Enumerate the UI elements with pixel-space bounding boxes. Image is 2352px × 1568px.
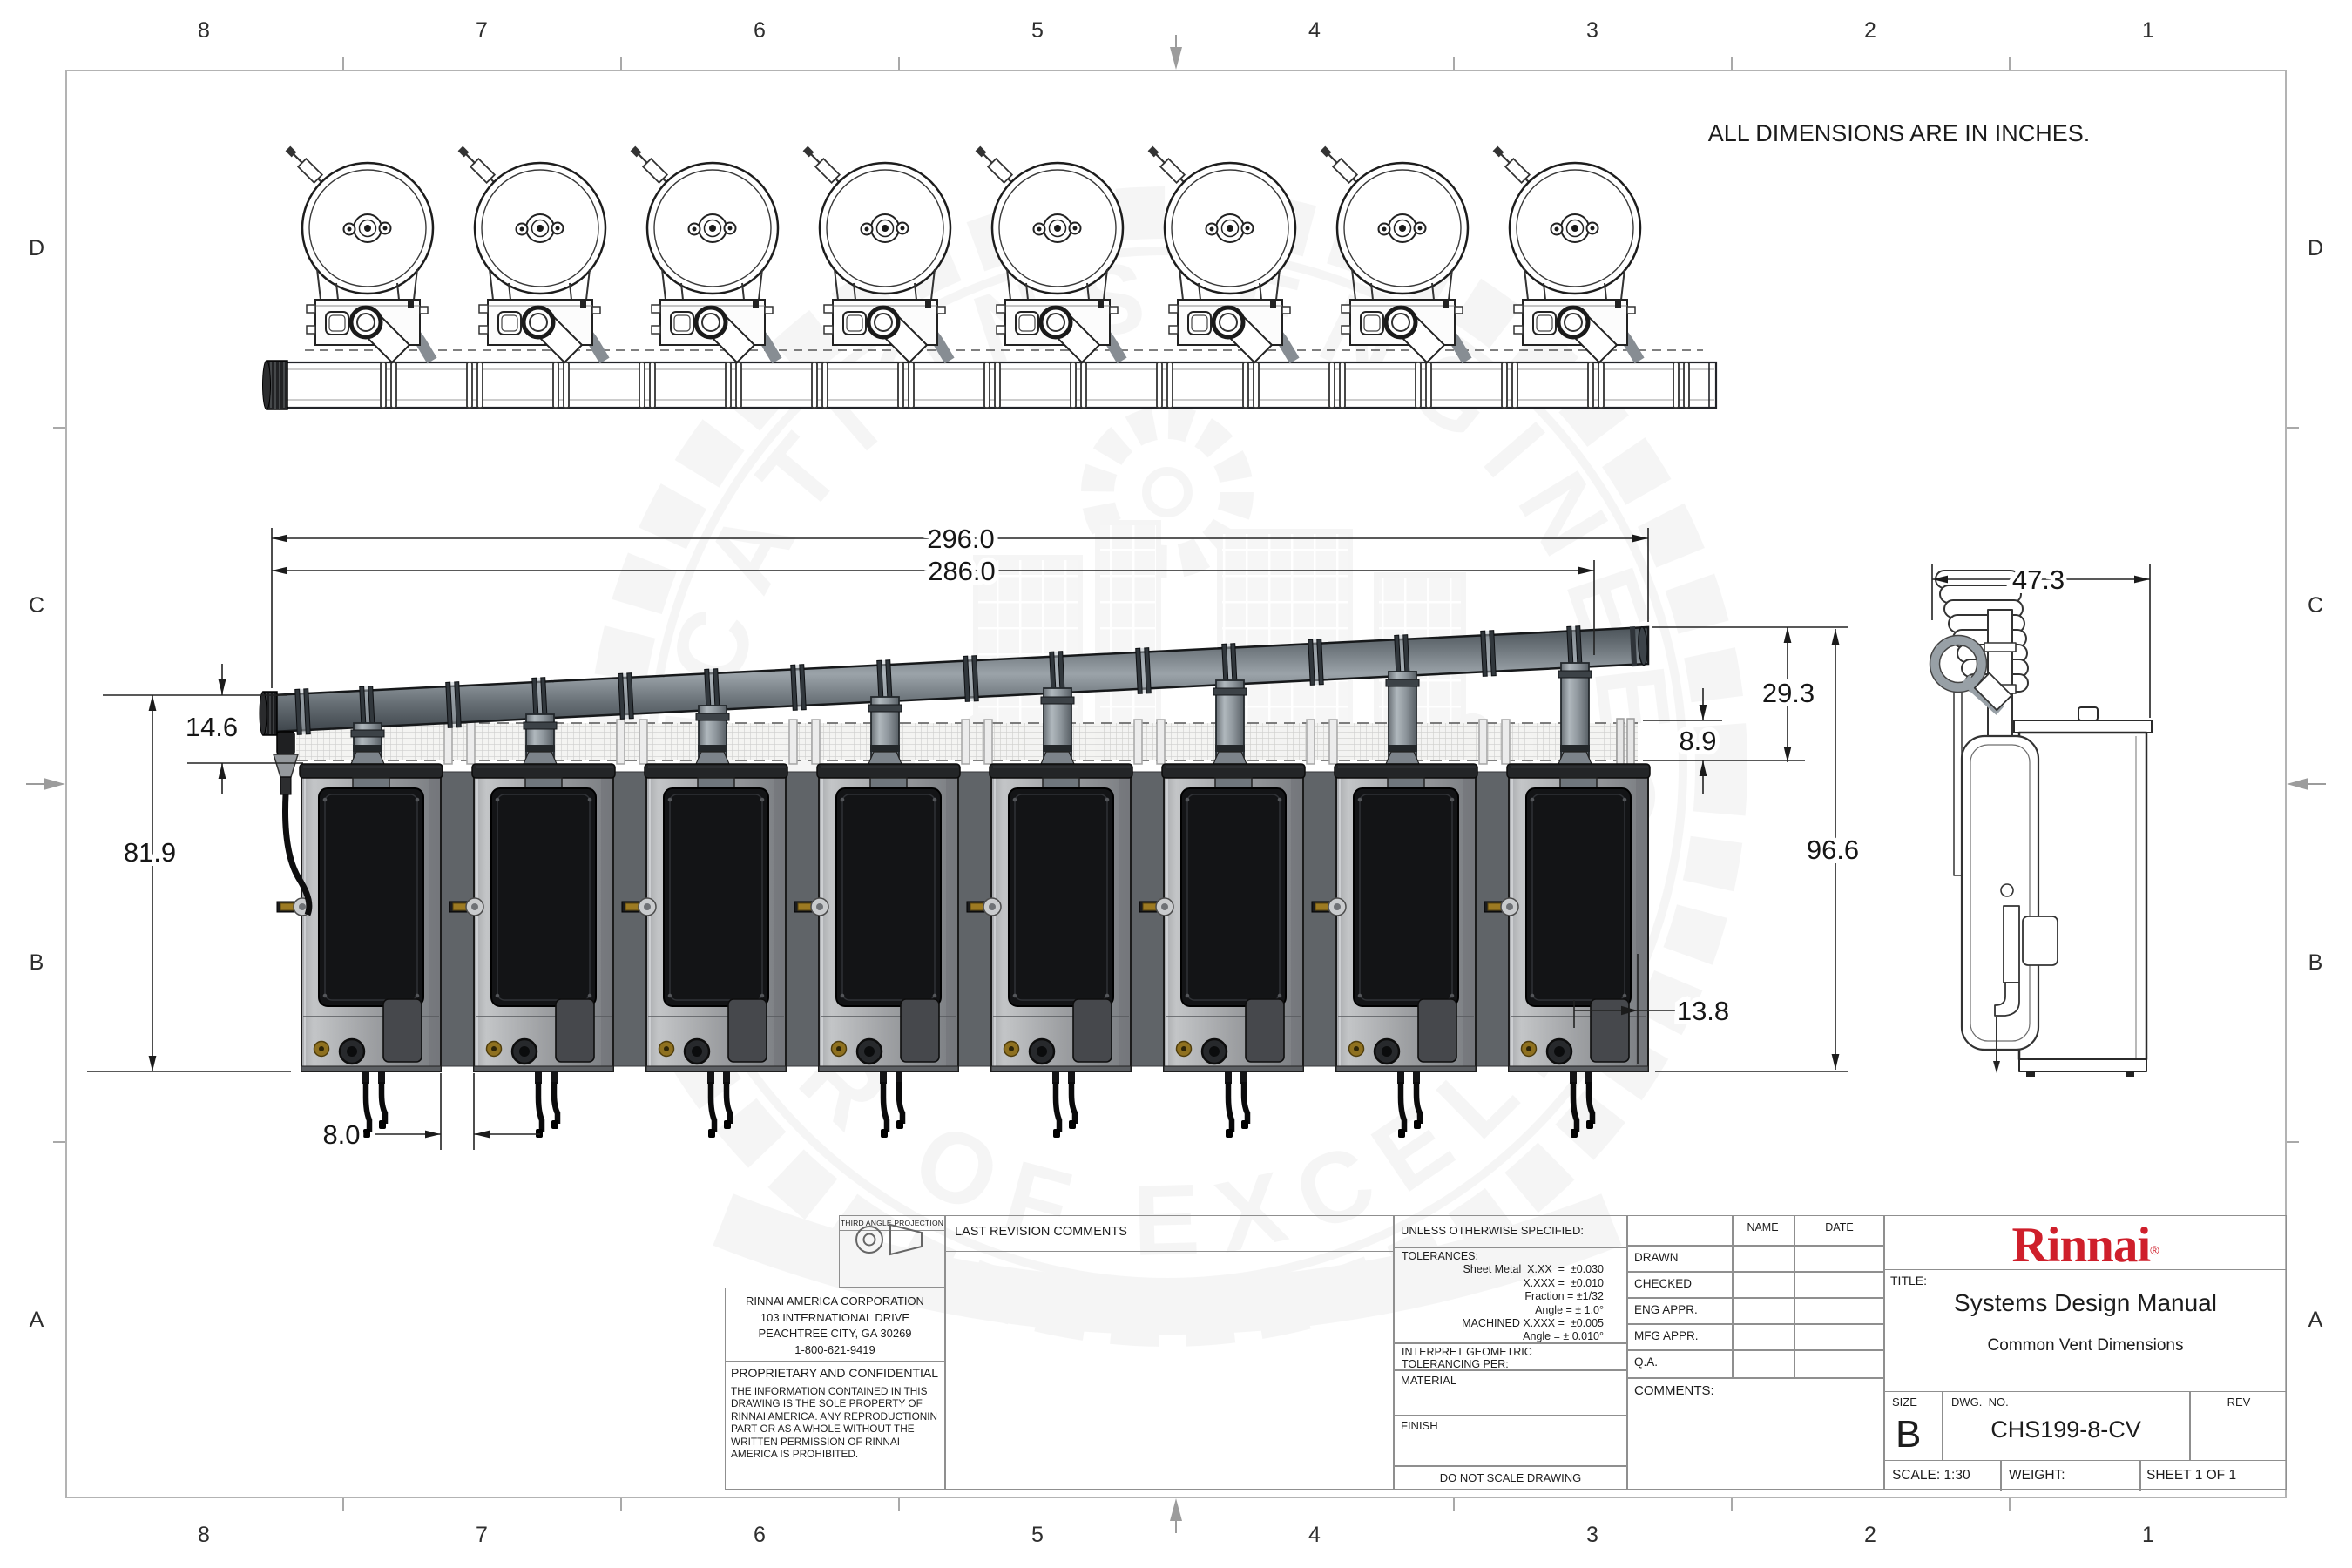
scale-text: SCALE: 1:30 [1892, 1468, 1970, 1484]
do-not-scale: DO NOT SCALE DRAWING [1394, 1466, 1627, 1490]
zone-col-bottom: 4 [1288, 1522, 1341, 1548]
tolerances-line: Angle = ± 0.010° [1395, 1330, 1626, 1343]
spec-header: UNLESS OTHERWISE SPECIFIED: [1395, 1216, 1626, 1237]
interpret-line2: TOLERANCING PER: [1402, 1358, 1626, 1370]
zone-col-top: 1 [2122, 17, 2174, 44]
name-header: NAME [1732, 1221, 1794, 1233]
approvals-grid-line [1628, 1377, 1885, 1379]
zone-col-bottom: 2 [1844, 1522, 1896, 1548]
drawing-title: Systems Design Manual [1885, 1289, 2286, 1317]
zone-row-left: B [10, 950, 63, 976]
weight-text: WEIGHT: [2009, 1468, 2065, 1484]
size-value: B [1896, 1413, 1921, 1456]
proprietary-box: PROPRIETARY AND CONFIDENTIAL THE INFORMA… [725, 1362, 945, 1490]
zone-tick [620, 1498, 622, 1511]
zone-row-right: A [2289, 1307, 2342, 1333]
approval-row-qa: Q.A. [1628, 1349, 1738, 1375]
zone-row-right: B [2289, 950, 2342, 976]
date-header: DATE [1794, 1221, 1885, 1233]
approval-row-checked: CHECKED [1628, 1271, 1738, 1296]
comments-label: COMMENTS: [1634, 1383, 1714, 1398]
brand-logo-text: Rinnai [2011, 1218, 2150, 1273]
zone-col-bottom: 5 [1011, 1522, 1064, 1548]
zone-tick [53, 1141, 65, 1143]
zone-row-left: A [10, 1307, 63, 1333]
zone-tick [2287, 427, 2299, 429]
approvals-box: NAME DATE DRAWN CHECKED ENG APPR. MFG AP… [1627, 1215, 1884, 1490]
grid-line [2000, 1461, 2002, 1491]
title-label: TITLE: [1885, 1270, 2286, 1288]
drawing-subtitle: Common Vent Dimensions [1885, 1336, 2286, 1355]
interpret-line1: INTERPRET GEOMETRIC [1402, 1346, 1626, 1358]
third-angle-projection-icon [840, 1216, 943, 1261]
spec-header-box: UNLESS OTHERWISE SPECIFIED: [1394, 1215, 1627, 1247]
proprietary-title: PROPRIETARY AND CONFIDENTIAL [731, 1366, 939, 1380]
projection-box: THIRD ANGLE PROJECTION [839, 1215, 945, 1288]
zone-col-bottom: 1 [2122, 1522, 2174, 1548]
finish-label: FINISH [1395, 1416, 1626, 1432]
brand-logo: Rinnai® [1885, 1216, 2286, 1270]
zone-col-top: 7 [456, 17, 508, 44]
zone-tick [898, 1498, 900, 1511]
size-dwg-row: SIZE B DWG. NO. CHS199-8-CV REV [1885, 1392, 2286, 1461]
tolerances-line: TOLERANCES: [1395, 1250, 1626, 1263]
proprietary-text: THE INFORMATION CONTAINED IN THIS DRAWIN… [731, 1385, 939, 1460]
zone-col-bottom: 7 [456, 1522, 508, 1548]
zone-tick [2009, 1498, 2011, 1511]
zone-row-right: D [2289, 235, 2342, 261]
revision-header: LAST REVISION COMMENTS [946, 1216, 1393, 1252]
company-city: PEACHTREE CITY, GA 30269 [726, 1326, 944, 1342]
zone-row-left: C [10, 592, 63, 618]
zone-col-bottom: 8 [178, 1522, 230, 1548]
dwg-label: DWG. NO. [1951, 1396, 2009, 1409]
tolerances-line: Sheet Metal X.XX = ±0.030 [1395, 1263, 1626, 1276]
company-box: RINNAI AMERICA CORPORATION 103 INTERNATI… [725, 1288, 945, 1362]
zone-tick [2009, 57, 2011, 70]
zone-tick [1731, 1498, 1733, 1511]
zone-tick [2287, 1141, 2299, 1143]
zone-col-bottom: 3 [1566, 1522, 1619, 1548]
drawing-sheet: APPLICATIONS ENGINEERING CENTER OF EXCEL… [0, 0, 2352, 1568]
approval-row-eng: ENG APPR. [1628, 1297, 1738, 1322]
company-name: RINNAI AMERICA CORPORATION [726, 1294, 944, 1310]
tolerances-line: Angle = ± 1.0° [1395, 1304, 1626, 1317]
zone-tick [342, 57, 344, 70]
tolerances-line: Fraction = ±1/32 [1395, 1290, 1626, 1303]
zone-row-right: C [2289, 592, 2342, 618]
zone-tick [898, 57, 900, 70]
zone-col-bottom: 6 [733, 1522, 786, 1548]
zone-tick [1453, 57, 1455, 70]
zone-col-top: 2 [1844, 17, 1896, 44]
company-phone: 1-800-621-9419 [726, 1342, 944, 1359]
company-street: 103 INTERNATIONAL DRIVE [726, 1310, 944, 1327]
tolerances-line: X.XXX = ±0.010 [1395, 1277, 1626, 1290]
zone-col-top: 5 [1011, 17, 1064, 44]
zone-col-top: 3 [1566, 17, 1619, 44]
interpret-box: INTERPRET GEOMETRIC TOLERANCING PER: [1394, 1343, 1627, 1370]
tolerances-line: MACHINED X.XXX = ±0.005 [1395, 1317, 1626, 1330]
size-label: SIZE [1892, 1396, 1917, 1409]
tolerances-box: TOLERANCES: Sheet Metal X.XX = ±0.030 X.… [1394, 1247, 1627, 1343]
dwg-number: CHS199-8-CV [1943, 1416, 2189, 1443]
zone-col-top: 4 [1288, 17, 1341, 44]
revision-box: LAST REVISION COMMENTS [945, 1215, 1394, 1490]
rev-label: REV [2190, 1396, 2288, 1409]
zone-tick [1731, 57, 1733, 70]
zone-col-top: 8 [178, 17, 230, 44]
brand-reg-mark: ® [2150, 1243, 2159, 1257]
zone-tick [342, 1498, 344, 1511]
approval-row-drawn: DRAWN [1628, 1245, 1738, 1270]
zone-col-top: 6 [733, 17, 786, 44]
grid-line [2139, 1461, 2141, 1491]
material-label: MATERIAL [1395, 1371, 1626, 1387]
zone-row-left: D [10, 235, 63, 261]
zone-tick [53, 427, 65, 429]
title-area: TITLE: Systems Design Manual Common Vent… [1885, 1270, 2286, 1392]
finish-box: FINISH [1394, 1416, 1627, 1466]
zone-tick [620, 57, 622, 70]
sheet-text: SHEET 1 OF 1 [2146, 1468, 2236, 1484]
scale-row: SCALE: 1:30 WEIGHT: SHEET 1 OF 1 [1885, 1461, 2286, 1491]
brand-title-box: Rinnai® TITLE: Systems Design Manual Com… [1884, 1215, 2287, 1490]
approval-row-mfg: MFG APPR. [1628, 1323, 1738, 1348]
material-box: MATERIAL [1394, 1370, 1627, 1416]
zone-tick [1453, 1498, 1455, 1511]
